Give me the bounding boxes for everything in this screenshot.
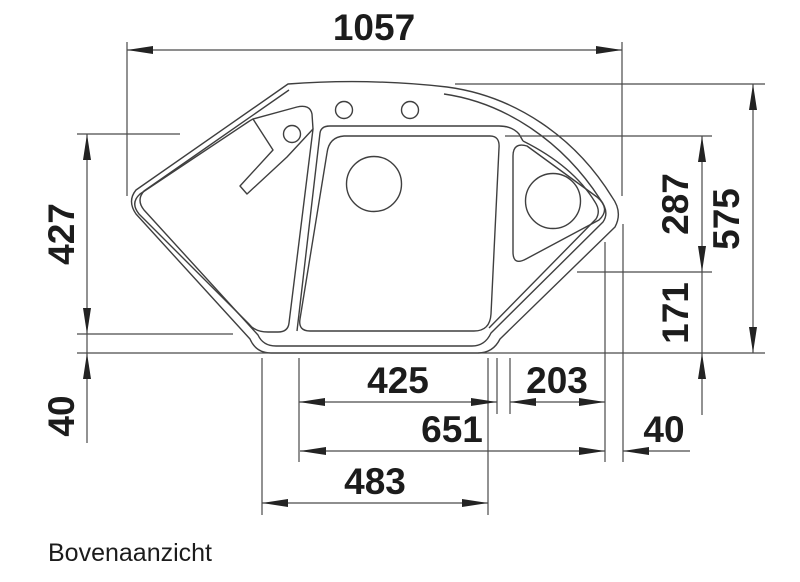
dim-overall-width-label: 1057 (333, 7, 415, 48)
tap-hole-right (402, 102, 419, 119)
arrowhead (749, 84, 757, 110)
drainer-area-outline (135, 119, 313, 332)
sink-outline-group (132, 82, 619, 353)
arrowhead (596, 46, 622, 54)
arrowhead (471, 398, 497, 406)
main-bowl-outline (300, 136, 499, 331)
divider-and-tap-ledge-edge (297, 126, 523, 331)
dim-right-offset-label: 40 (643, 409, 684, 450)
arrowhead (698, 353, 706, 379)
sink-top-view-drawing: 1057 575 427 287 171 40 425 203 651 40 4… (0, 0, 800, 582)
arrowhead (749, 327, 757, 353)
dim-corner-bowl-width-label: 203 (526, 360, 588, 401)
corner-bowl-drain-hole (526, 174, 581, 229)
arrowhead (83, 134, 91, 160)
arrowhead (83, 353, 91, 379)
sink-inner-rim-line (140, 90, 606, 346)
arrowhead (262, 499, 288, 507)
technical-drawing-page: 1057 575 427 287 171 40 425 203 651 40 4… (0, 0, 800, 582)
faucet-symbol (253, 106, 313, 129)
faucet-hole (284, 126, 301, 143)
dim-bottom-left-offset-label: 40 (41, 395, 82, 436)
arrowhead (698, 246, 706, 272)
dim-overall-depth-label: 575 (706, 188, 747, 250)
dim-front-rim-depth-label: 171 (655, 282, 696, 344)
dimension-labels-group: 1057 575 427 287 171 40 425 203 651 40 4… (41, 7, 747, 502)
view-caption: Bovenaanzicht (48, 539, 212, 567)
arrowhead (127, 46, 153, 54)
dim-corner-bowl-depth-label: 287 (655, 173, 696, 235)
arrowhead (462, 499, 488, 507)
arrowhead (83, 308, 91, 334)
dim-drainer-span-label: 483 (344, 461, 406, 502)
sink-outer-contour (132, 82, 619, 353)
corner-bowl-step-line (489, 141, 598, 328)
arrowhead (698, 136, 706, 162)
arrowhead (579, 447, 605, 455)
dim-bowls-span-label: 651 (421, 409, 483, 450)
main-bowl-drain-hole (347, 157, 402, 212)
arrowhead (299, 398, 325, 406)
dim-bowl-depth-label: 427 (41, 203, 82, 265)
dim-main-bowl-width-label: 425 (367, 360, 429, 401)
arrowhead (300, 447, 326, 455)
tap-hole-left (336, 102, 353, 119)
